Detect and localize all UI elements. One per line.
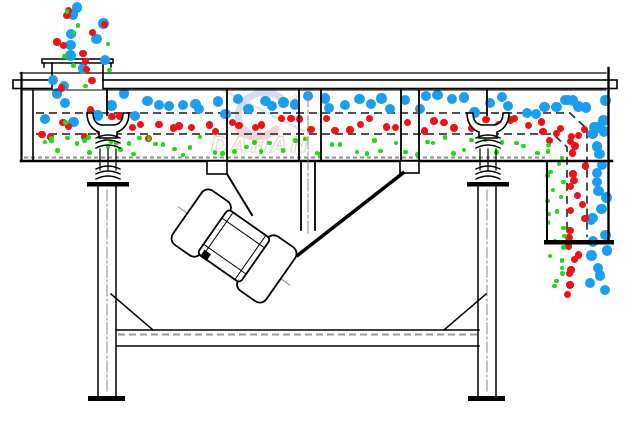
- feed-fine-particle: [71, 63, 76, 68]
- feed-medium-particle: [89, 29, 96, 36]
- feed-medium-particle: [58, 84, 65, 91]
- feed-fine-particle: [107, 68, 112, 73]
- feed-medium-particle: [82, 58, 89, 65]
- feed-coarse-particle: [100, 55, 110, 65]
- feed-medium-particle: [79, 50, 86, 57]
- feed-fine-particle: [62, 54, 67, 59]
- feed-coarse-particle: [48, 75, 58, 85]
- feed-medium-particle: [88, 77, 95, 84]
- feed-medium-particle: [83, 66, 90, 73]
- feed-medium-particle: [101, 21, 108, 28]
- feed-fine-particle: [106, 42, 111, 47]
- feed-coarse-particle: [65, 50, 75, 60]
- particle-layer-feed: [0, 0, 638, 428]
- feed-fine-particle: [76, 23, 81, 28]
- vibrating-screen-diagram: DAHAN ®: [0, 0, 638, 428]
- feed-fine-particle: [83, 84, 88, 89]
